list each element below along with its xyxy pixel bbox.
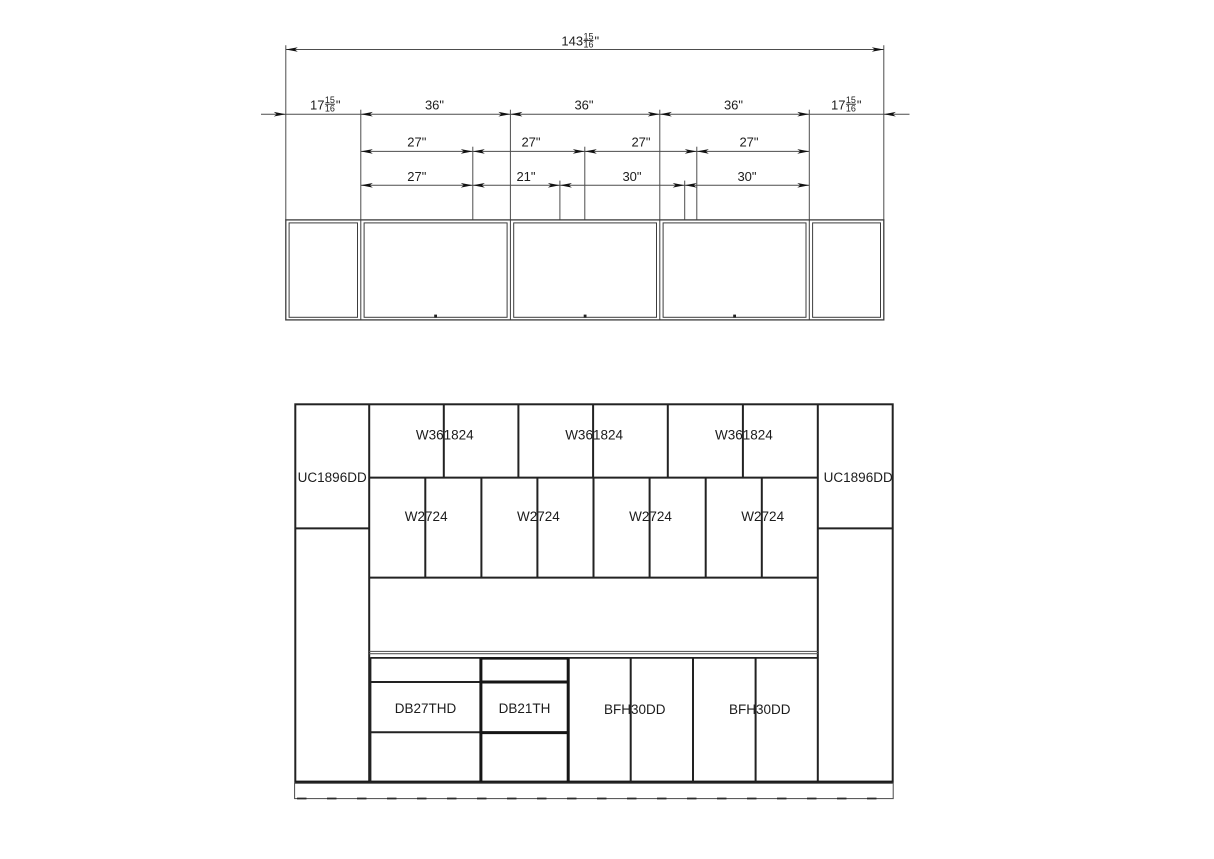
svg-text:30": 30" [737, 169, 756, 184]
svg-text:27": 27" [739, 134, 758, 149]
svg-text:21": 21" [516, 169, 535, 184]
svg-text:W2724: W2724 [517, 509, 560, 524]
svg-text:W2724: W2724 [405, 509, 448, 524]
svg-text:W361824: W361824 [416, 428, 474, 443]
svg-text:": " [595, 34, 600, 49]
svg-text:BFH30DD: BFH30DD [604, 702, 666, 717]
svg-text:W2724: W2724 [629, 509, 672, 524]
svg-text:BFH30DD: BFH30DD [729, 702, 791, 717]
svg-text:16: 16 [846, 103, 856, 113]
svg-text:36": 36" [574, 97, 593, 112]
svg-text:W361824: W361824 [715, 428, 773, 443]
svg-text:17: 17 [310, 97, 324, 112]
svg-text:27": 27" [407, 169, 426, 184]
svg-text:27": 27" [521, 134, 540, 149]
svg-text:36": 36" [724, 97, 743, 112]
svg-text:": " [857, 97, 862, 112]
svg-text:17: 17 [831, 97, 845, 112]
svg-text:W2724: W2724 [741, 509, 784, 524]
svg-text:36": 36" [425, 97, 444, 112]
svg-text:27": 27" [631, 134, 650, 149]
svg-text:W361824: W361824 [565, 428, 623, 443]
svg-text:DB27THD: DB27THD [395, 701, 457, 716]
svg-text:30": 30" [622, 169, 641, 184]
svg-text:27": 27" [407, 134, 426, 149]
svg-text:": " [336, 97, 341, 112]
svg-text:16: 16 [583, 40, 593, 50]
svg-text:UC1896DD: UC1896DD [298, 470, 367, 485]
svg-text:UC1896DD: UC1896DD [824, 470, 893, 485]
svg-text:143: 143 [561, 34, 583, 49]
svg-text:16: 16 [325, 103, 335, 113]
svg-text:DB21TH: DB21TH [499, 701, 551, 716]
